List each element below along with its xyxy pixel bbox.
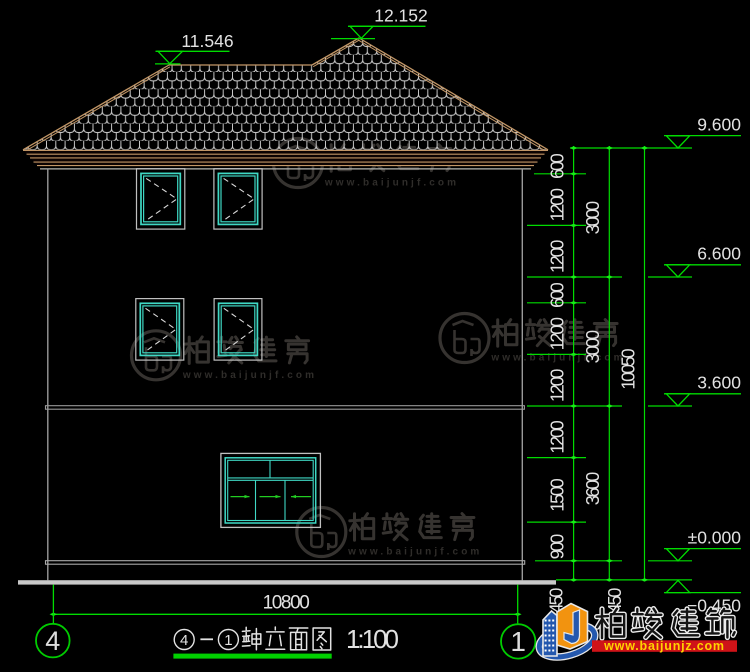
svg-text:1200: 1200	[548, 369, 568, 402]
svg-text:3.600: 3.600	[697, 373, 741, 393]
svg-text:3000: 3000	[583, 330, 603, 363]
svg-text:3000: 3000	[583, 201, 603, 234]
svg-text:900: 900	[548, 534, 568, 560]
svg-text:6.600: 6.600	[697, 244, 741, 264]
svg-text:1200: 1200	[548, 240, 568, 273]
svg-text:12.152: 12.152	[374, 6, 428, 26]
svg-text:1: 1	[510, 626, 526, 657]
svg-text:9.600: 9.600	[697, 115, 741, 135]
svg-text:3600: 3600	[583, 472, 603, 505]
svg-text:10050: 10050	[619, 348, 639, 389]
svg-text:600: 600	[548, 153, 568, 179]
svg-text:www.baijunjf.com: www.baijunjf.com	[347, 547, 482, 558]
svg-text:1200: 1200	[548, 317, 568, 350]
svg-text:1: 1	[224, 632, 232, 649]
svg-text:±0.000: ±0.000	[688, 528, 742, 548]
svg-text:www.baijunjf.com: www.baijunjf.com	[182, 370, 317, 381]
svg-text:1200: 1200	[548, 420, 568, 453]
svg-text:www.baijunjz.com: www.baijunjz.com	[603, 639, 725, 653]
svg-text:10800: 10800	[263, 593, 310, 614]
svg-text:600: 600	[548, 282, 568, 308]
svg-text:1500: 1500	[548, 478, 568, 511]
svg-text:1200: 1200	[548, 188, 568, 221]
svg-text:1:100: 1:100	[346, 624, 399, 654]
svg-text:11.546: 11.546	[181, 31, 233, 51]
svg-text:www.baijunjf.com: www.baijunjf.com	[324, 178, 459, 189]
svg-text:4: 4	[180, 632, 188, 649]
svg-text:4: 4	[45, 626, 60, 656]
